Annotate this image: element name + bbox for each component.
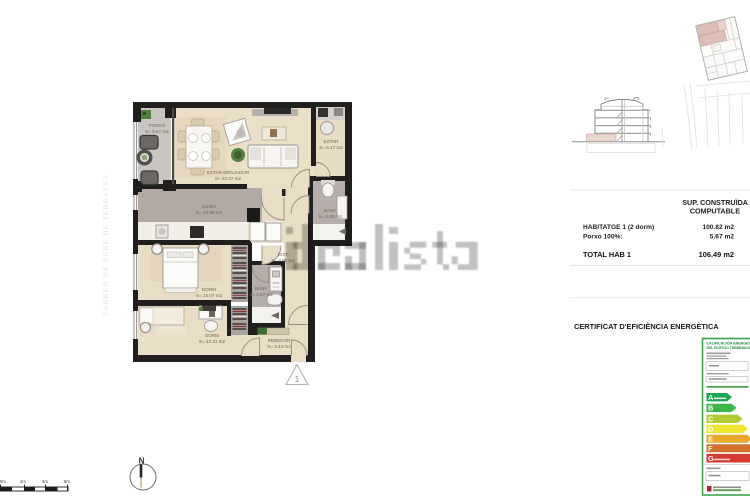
svg-text:PORXO: PORXO [149, 123, 166, 128]
svg-text:CERTIFICAT D'EFICIÈNCIA ENERGÈ: CERTIFICAT D'EFICIÈNCIA ENERGÈTICA [574, 322, 719, 331]
svg-text:BANY: BANY [324, 208, 337, 213]
svg-text:CUINA: CUINA [202, 204, 217, 209]
svg-text:G: G [708, 454, 714, 463]
svg-text:100.82 m2: 100.82 m2 [702, 224, 734, 231]
svg-text:S= 3.43 m2: S= 3.43 m2 [267, 344, 291, 349]
svg-text:N: N [139, 457, 145, 466]
svg-text:Porxo 100%:: Porxo 100%: [583, 234, 623, 241]
svg-text:DEL EDIFICIO TERMINADO: DEL EDIFICIO TERMINADO [707, 346, 750, 350]
svg-text:SUP. CONSTRUÏDA: SUP. CONSTRUÏDA [682, 198, 748, 207]
svg-text:6m: 6m [64, 479, 70, 484]
svg-text:F: F [708, 444, 713, 453]
svg-text:BANY: BANY [255, 286, 268, 291]
svg-text:D: D [708, 425, 714, 434]
svg-text:S= 5.67 m2: S= 5.67 m2 [145, 129, 169, 134]
svg-text:2m: 2m [20, 479, 26, 484]
svg-text:TOTAL HAB 1: TOTAL HAB 1 [583, 250, 631, 259]
svg-text:CALIFICACIÓN ENERGÉTICA: CALIFICACIÓN ENERGÉTICA [707, 341, 750, 346]
svg-text:DORM: DORM [205, 333, 219, 338]
svg-text:0m: 0m [0, 479, 6, 484]
svg-text:HABITATGE 1 (2 dorm): HABITATGE 1 (2 dorm) [583, 224, 654, 231]
svg-text:4m: 4m [42, 479, 48, 484]
svg-text:5.67 m2: 5.67 m2 [710, 234, 735, 241]
svg-text:S= 12.31 m2: S= 12.31 m2 [199, 339, 226, 344]
svg-text:C: C [708, 415, 714, 424]
svg-text:1: 1 [295, 374, 300, 384]
svg-text:S= 4.35 m2: S= 4.35 m2 [318, 214, 342, 219]
svg-text:CARRER DE PERE DE TERRASSA: CARRER DE PERE DE TERRASSA [103, 174, 110, 316]
svg-text:ESTAR: ESTAR [324, 139, 340, 144]
svg-text:REBEDOR: REBEDOR [268, 338, 291, 343]
svg-text:S= 2.87 m2: S= 2.87 m2 [249, 292, 273, 297]
svg-text:106.49 m2: 106.49 m2 [699, 250, 734, 259]
svg-text:COMPUTABLE: COMPUTABLE [690, 207, 740, 216]
svg-text:S= 15.07 m2: S= 15.07 m2 [196, 293, 223, 298]
svg-text:B: B [708, 404, 714, 413]
svg-text:S= 19.85 m2: S= 19.85 m2 [196, 210, 223, 215]
svg-text:DORM: DORM [202, 287, 216, 292]
svg-text:S= 5.17 m2: S= 5.17 m2 [319, 145, 343, 150]
svg-text:E: E [708, 434, 713, 443]
svg-text:S= 22.07 m2: S= 22.07 m2 [215, 176, 242, 181]
svg-text:ESTAR-MENJADOR: ESTAR-MENJADOR [207, 170, 250, 175]
svg-text:A: A [708, 393, 714, 402]
